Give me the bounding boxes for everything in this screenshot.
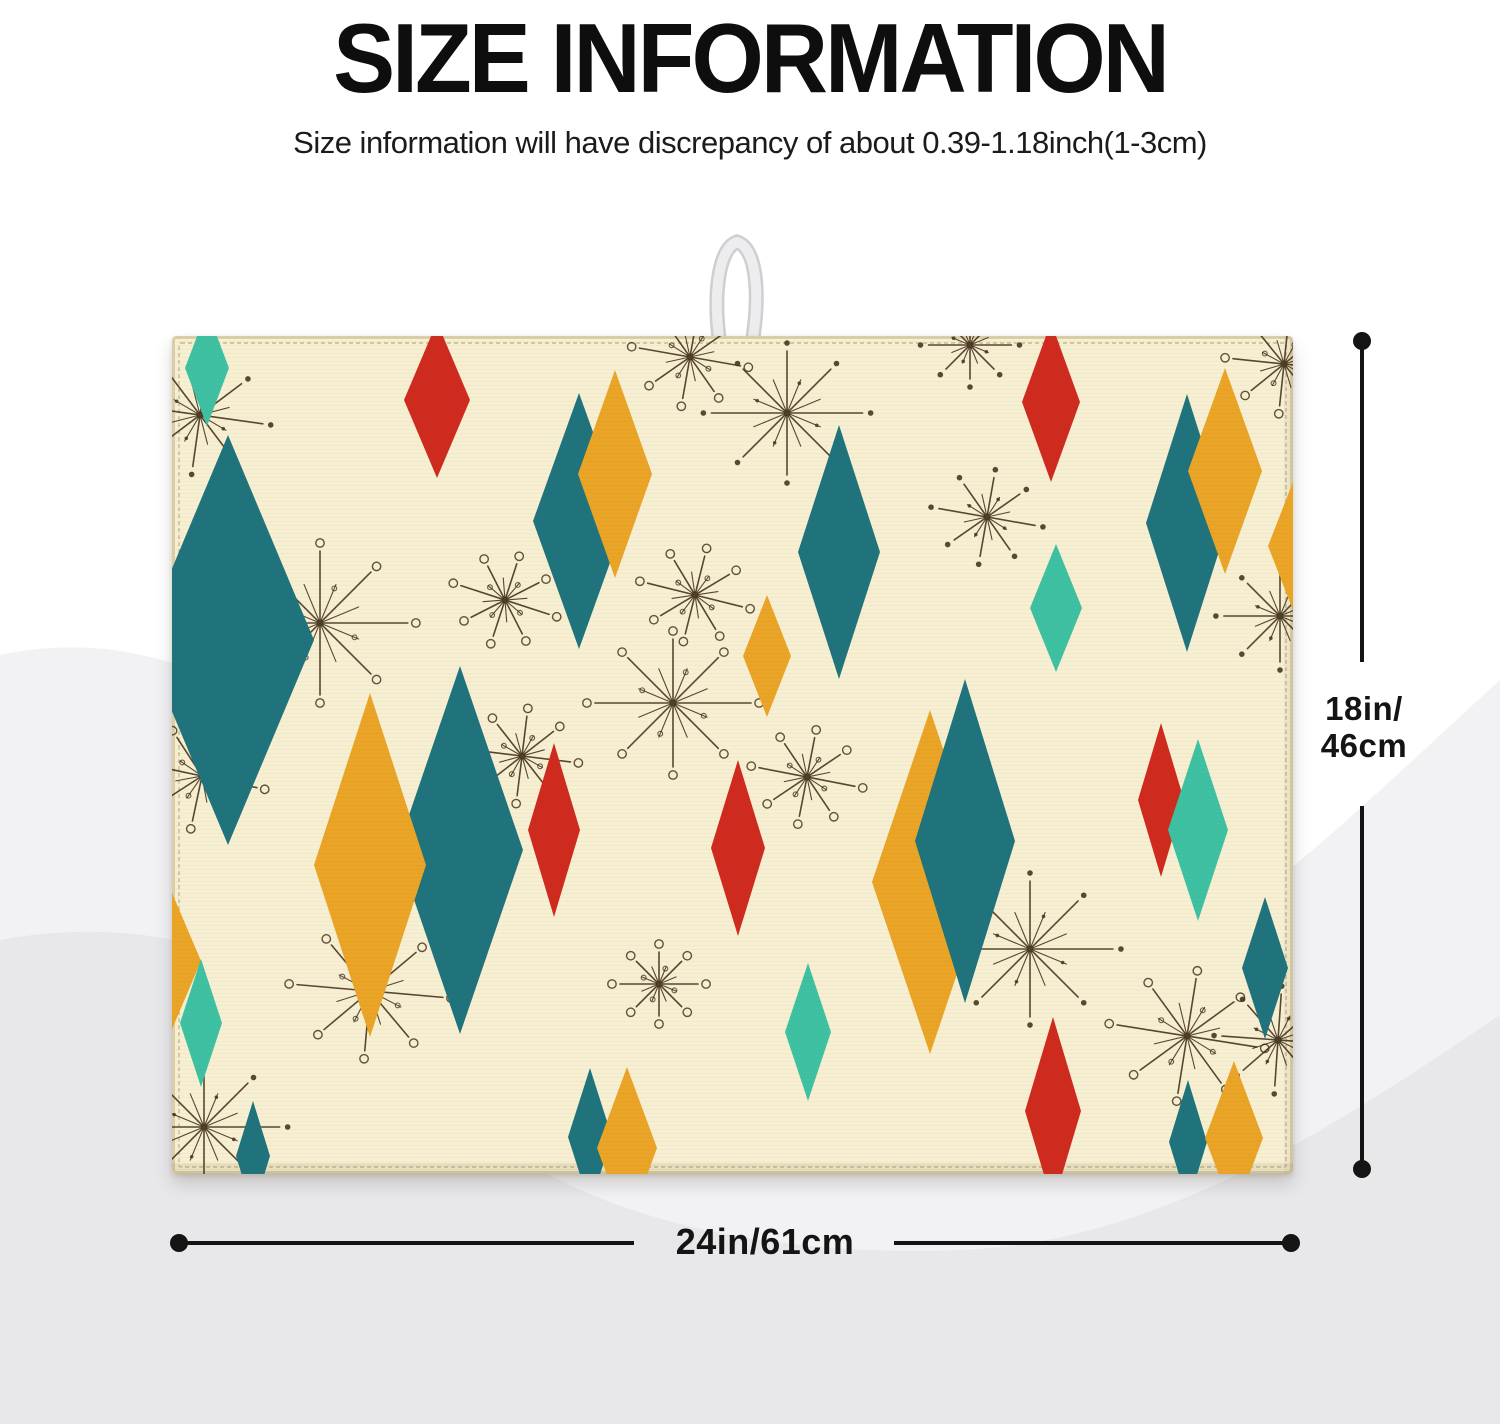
height-dimension-bottom-dot bbox=[1353, 1160, 1371, 1178]
height-dimension-line-upper bbox=[1360, 340, 1364, 662]
height-dimension-label: 18in/ 46cm bbox=[1296, 690, 1432, 764]
mat-fabric bbox=[172, 336, 1293, 1174]
mat-bottom-edge-shade bbox=[172, 1163, 1293, 1174]
width-dimension-line-right bbox=[894, 1241, 1291, 1245]
product-image-dish-mat bbox=[172, 336, 1293, 1174]
width-dimension-line-left bbox=[179, 1241, 634, 1245]
width-dimension-right-dot bbox=[1282, 1234, 1300, 1252]
height-dimension-line-lower bbox=[1360, 806, 1364, 1170]
size-information-infographic: SIZE INFORMATION Size information will h… bbox=[0, 0, 1500, 1424]
header: SIZE INFORMATION Size information will h… bbox=[0, 0, 1500, 161]
page-title: SIZE INFORMATION bbox=[0, 0, 1500, 116]
hanging-loop bbox=[690, 230, 810, 342]
height-dimension-label-cm: 46cm bbox=[1296, 727, 1432, 764]
width-dimension-label: 24in/61cm bbox=[637, 1221, 893, 1263]
height-dimension-label-inches: 18in/ bbox=[1296, 690, 1432, 727]
page-subtitle: Size information will have discrepancy o… bbox=[0, 125, 1500, 161]
